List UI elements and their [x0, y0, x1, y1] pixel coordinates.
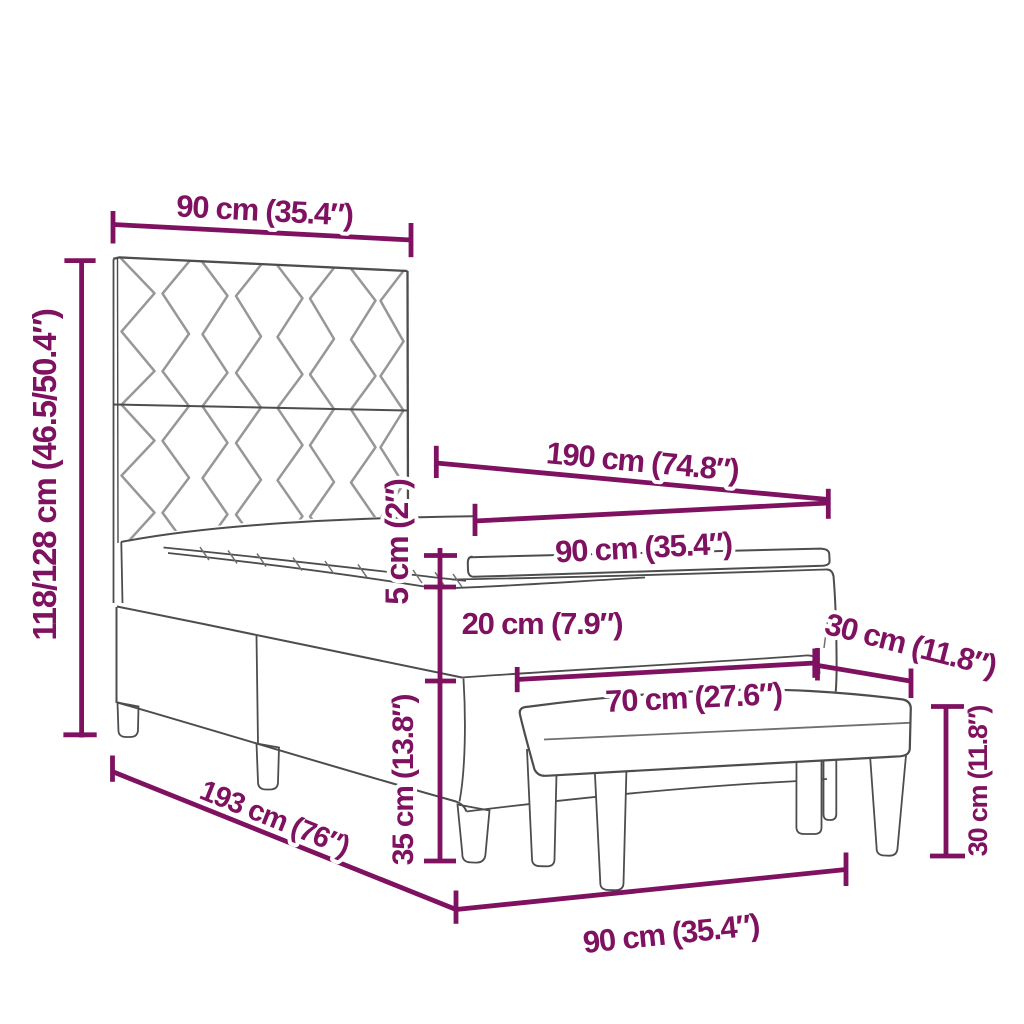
- svg-text:118/128 cm (46.5/50.4″): 118/128 cm (46.5/50.4″): [26, 309, 63, 641]
- svg-text:20 cm (7.9″): 20 cm (7.9″): [462, 606, 623, 641]
- svg-text:30 cm (11.8″): 30 cm (11.8″): [963, 706, 993, 857]
- svg-text:35 cm (13.8″): 35 cm (13.8″): [387, 695, 420, 866]
- svg-text:5 cm (2″): 5 cm (2″): [379, 479, 415, 605]
